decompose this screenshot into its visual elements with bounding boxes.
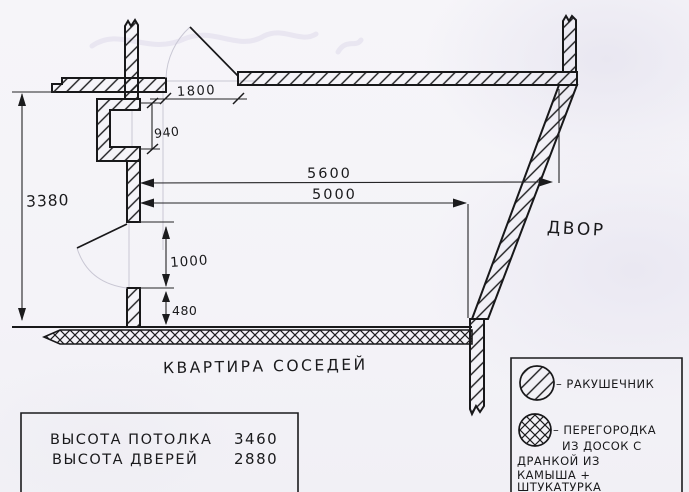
- legend-label-partition-line2: из досок с: [562, 439, 642, 453]
- dimension-value: 480: [172, 303, 197, 318]
- dimension-value: 5600: [307, 166, 352, 182]
- note-line2-value: 2880: [234, 450, 278, 468]
- dimension-5000: 5000: [140, 187, 468, 318]
- dimension-value: 5000: [312, 187, 357, 203]
- wall-beam-top-right: [238, 72, 577, 85]
- dimension-3380: 3380: [12, 92, 70, 321]
- dimension-value: 940: [153, 123, 180, 141]
- wall-right-vertical-top: [563, 16, 576, 72]
- blueprint-canvas: 3380 1800 940 5600 5000 1000: [0, 0, 689, 492]
- wall-stub-bottom-left: [127, 288, 140, 327]
- wall-column-upper: [125, 20, 138, 99]
- wall-beam-top-left: [52, 78, 166, 92]
- door-leaf: [77, 224, 127, 248]
- dimension-value: 1800: [177, 83, 217, 100]
- door-swing-arc: [166, 27, 190, 78]
- note-line1-label: Высота потолка: [50, 432, 212, 448]
- label-neighbors-apartment: Квартира соседей: [163, 355, 368, 378]
- legend-label-partition-line3: дранкой из: [517, 453, 600, 468]
- dimension-1000: 1000: [138, 222, 209, 288]
- door-bottom: [77, 224, 127, 288]
- note-line2-label: Высота дверей: [52, 450, 198, 468]
- dimension-5600: 5600: [140, 89, 559, 188]
- note-line1-value: 3460: [234, 430, 278, 448]
- legend-symbol-shell-rock: [520, 366, 554, 400]
- legend-label-partition-line1: – перегородка: [553, 423, 656, 437]
- scanned-sketch-page: 3380 1800 940 5600 5000 1000: [0, 0, 689, 492]
- dimension-940: 940: [139, 98, 180, 154]
- notes-box: Высота потолка 3460 Высота дверей 2880: [21, 413, 298, 492]
- legend-box: – ракушечник – перегородка из досок с др…: [511, 358, 682, 492]
- door-swing-arc: [77, 248, 127, 288]
- wall-slanted-courtyard: [472, 85, 577, 319]
- dimension-480: 480: [162, 291, 197, 325]
- dimension-value: 3380: [26, 191, 70, 211]
- wall-column-middle: [127, 161, 140, 222]
- label-courtyard: Двор: [546, 218, 606, 241]
- wall-niche-c-shape: [97, 99, 140, 161]
- legend-symbol-partition: [519, 414, 551, 446]
- legend-label-shell-rock: – ракушечник: [556, 377, 654, 391]
- legend-label-partition-line5: штукатурка: [517, 480, 601, 492]
- partition-crosshatched: [44, 330, 472, 344]
- dimension-value: 1000: [170, 252, 209, 271]
